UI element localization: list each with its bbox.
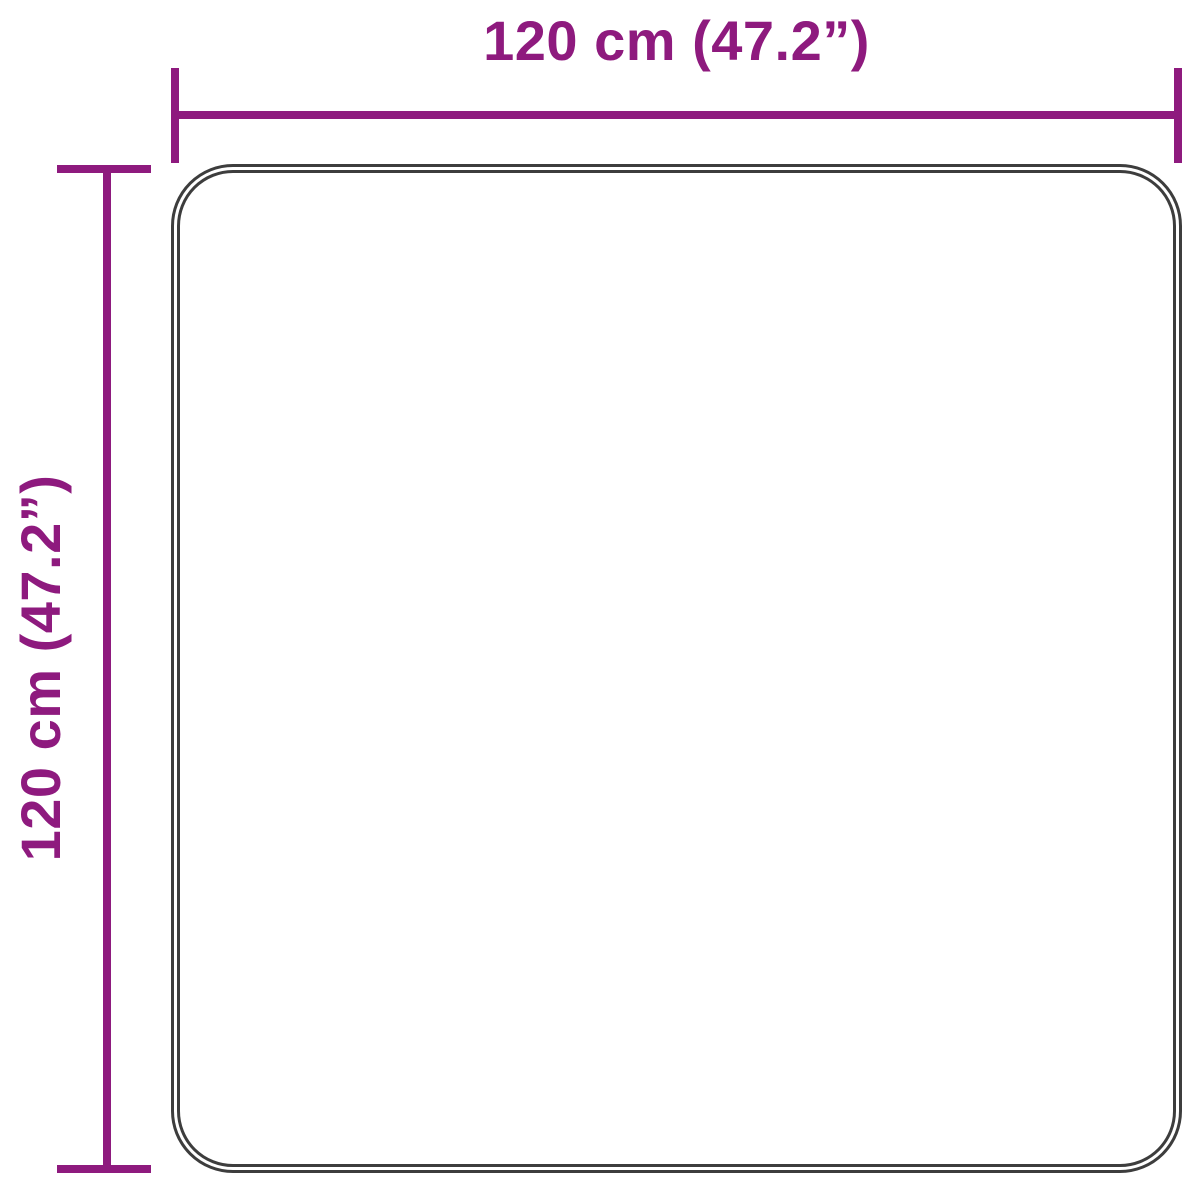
width-dimension-line — [171, 111, 1182, 119]
height-dimension-line — [103, 165, 111, 1173]
height-dimension-top-cap — [57, 165, 151, 173]
height-dimension-bottom-cap — [57, 1165, 151, 1173]
width-dimension-left-cap — [171, 68, 179, 163]
dimension-diagram: 120 cm (47.2”) 120 cm (47.2”) — [0, 0, 1200, 1200]
rug-outline — [171, 164, 1182, 1173]
width-dimension-right-cap — [1174, 68, 1182, 163]
height-dimension-label: 120 cm (47.2”) — [13, 475, 69, 862]
width-dimension-label: 120 cm (47.2”) — [171, 13, 1182, 69]
